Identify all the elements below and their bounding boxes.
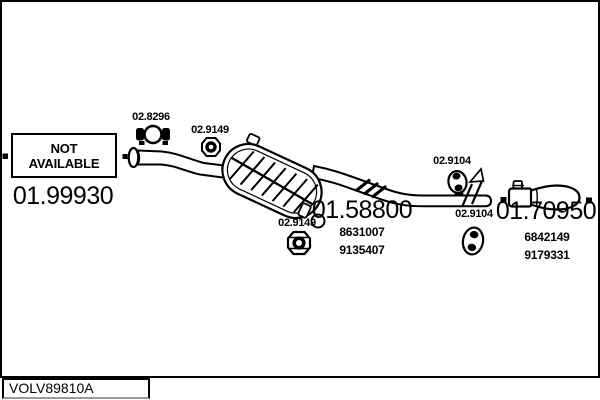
rubber-hanger-icon-front: [202, 138, 220, 156]
parts-catalog-page: NOT AVAILABLE 01.99930 02.8296 02.9149 0…: [0, 0, 600, 400]
part-code-hanger-rear-lower[interactable]: 02.9104: [452, 209, 496, 221]
part-code-hanger-rear-upper[interactable]: 02.9104: [430, 156, 474, 168]
not-available-line2: AVAILABLE: [29, 156, 100, 171]
part-code-hanger-front[interactable]: 02.9149: [188, 125, 232, 137]
diagram-code-box: VOLV89810A: [2, 378, 150, 399]
exhaust-clamp-icon: [136, 126, 170, 145]
not-available-line1: NOT: [51, 141, 78, 156]
part-code-mid-muffler[interactable]: 01.58800: [307, 197, 417, 223]
oem-number-mid-muffler-1: 8631007: [332, 226, 392, 239]
rubber-hanger-icon-rear-upper: [447, 170, 469, 195]
diagram-code: VOLV89810A: [9, 380, 94, 396]
connector-dot-left-border: [3, 154, 9, 160]
rubber-hanger-icon-rear-lower: [461, 226, 485, 256]
oem-number-rear-muffler-2: 9179331: [517, 249, 577, 262]
exhaust-diagram: NOT AVAILABLE 01.99930 02.8296 02.9149 0…: [0, 0, 600, 378]
rubber-hanger-icon-mid: [288, 232, 310, 254]
connector-dot-front: [123, 154, 128, 159]
part-code-front-pipe[interactable]: 01.99930: [8, 183, 118, 209]
part-code-rear-muffler[interactable]: 01.70950: [491, 198, 600, 224]
oem-number-rear-muffler-1: 6842149: [517, 231, 577, 244]
front-pipe-drawing: [129, 148, 236, 179]
part-code-clamp[interactable]: 02.8296: [129, 112, 173, 124]
front-pipe-flange-icon: [129, 148, 139, 167]
oem-number-mid-muffler-2: 9135407: [332, 244, 392, 257]
not-available-box: NOT AVAILABLE: [11, 133, 117, 178]
